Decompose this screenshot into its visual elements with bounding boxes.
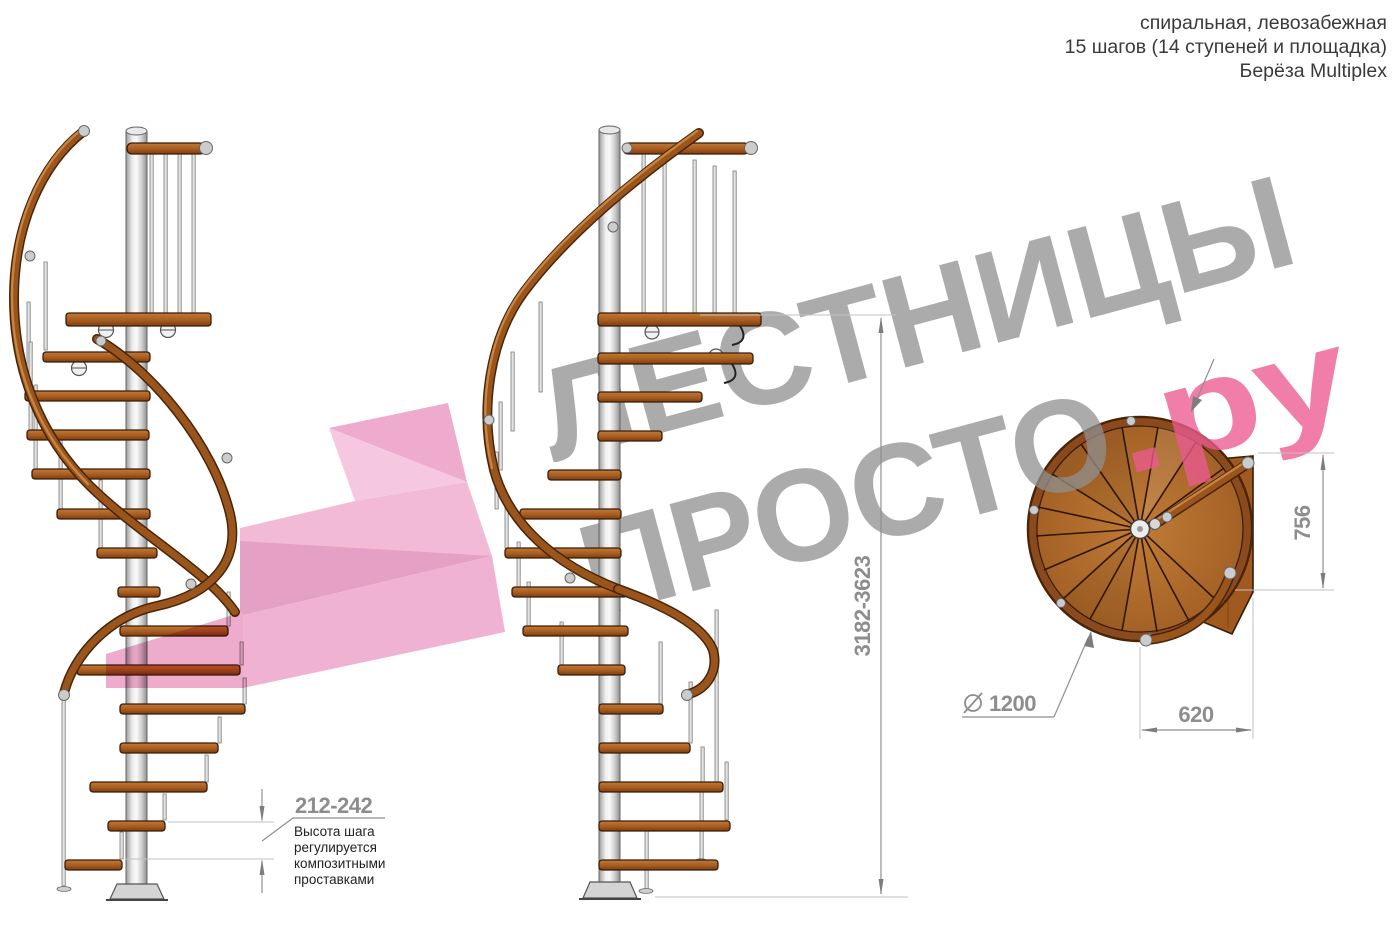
- landing-rail: [127, 142, 213, 155]
- spiral-handrail: [12, 126, 235, 701]
- title-line3: Берёза Multiplex: [1240, 60, 1388, 82]
- handrail-end-cap: [59, 690, 70, 701]
- base-flange: [110, 884, 164, 899]
- dimension-diameter: 1200: [962, 631, 1094, 717]
- step-height-note: Высота шага регулируется композитными пр…: [294, 824, 385, 887]
- base-flange: [583, 882, 637, 898]
- drawing-sheet: ЛЕСТНИЦЫ ПРОСТО .ру: [0, 0, 1400, 944]
- diameter-label: 1200: [989, 691, 1036, 716]
- title-block: спиральная, левозабежная 15 шагов (14 ст…: [1065, 12, 1388, 82]
- note-line: Высота шага: [294, 824, 375, 839]
- pole-rings: [72, 323, 176, 376]
- diameter-symbol: [964, 693, 982, 713]
- note-line: проставками: [294, 872, 374, 887]
- left-side-view: [12, 126, 246, 901]
- plan-width-label: 620: [1178, 702, 1213, 727]
- rim-block: [1057, 599, 1066, 608]
- note-line: композитными: [294, 856, 385, 871]
- title-line1: спиральная, левозабежная: [1140, 12, 1387, 34]
- staircase-drawing: ЛЕСТНИЦЫ ПРОСТО .ру: [0, 0, 1400, 944]
- handrail-end-cap: [682, 690, 693, 701]
- landing-step: [66, 313, 211, 326]
- title-line2: 15 шагов (14 ступеней и площадка): [1065, 36, 1387, 58]
- handrail-end-cap: [79, 126, 90, 137]
- note-line: регулируется: [294, 840, 377, 855]
- step-height-label: 212-242: [295, 793, 373, 818]
- total-height-label: 3182-3623: [850, 555, 875, 656]
- plan-depth-label: 756: [1290, 505, 1315, 540]
